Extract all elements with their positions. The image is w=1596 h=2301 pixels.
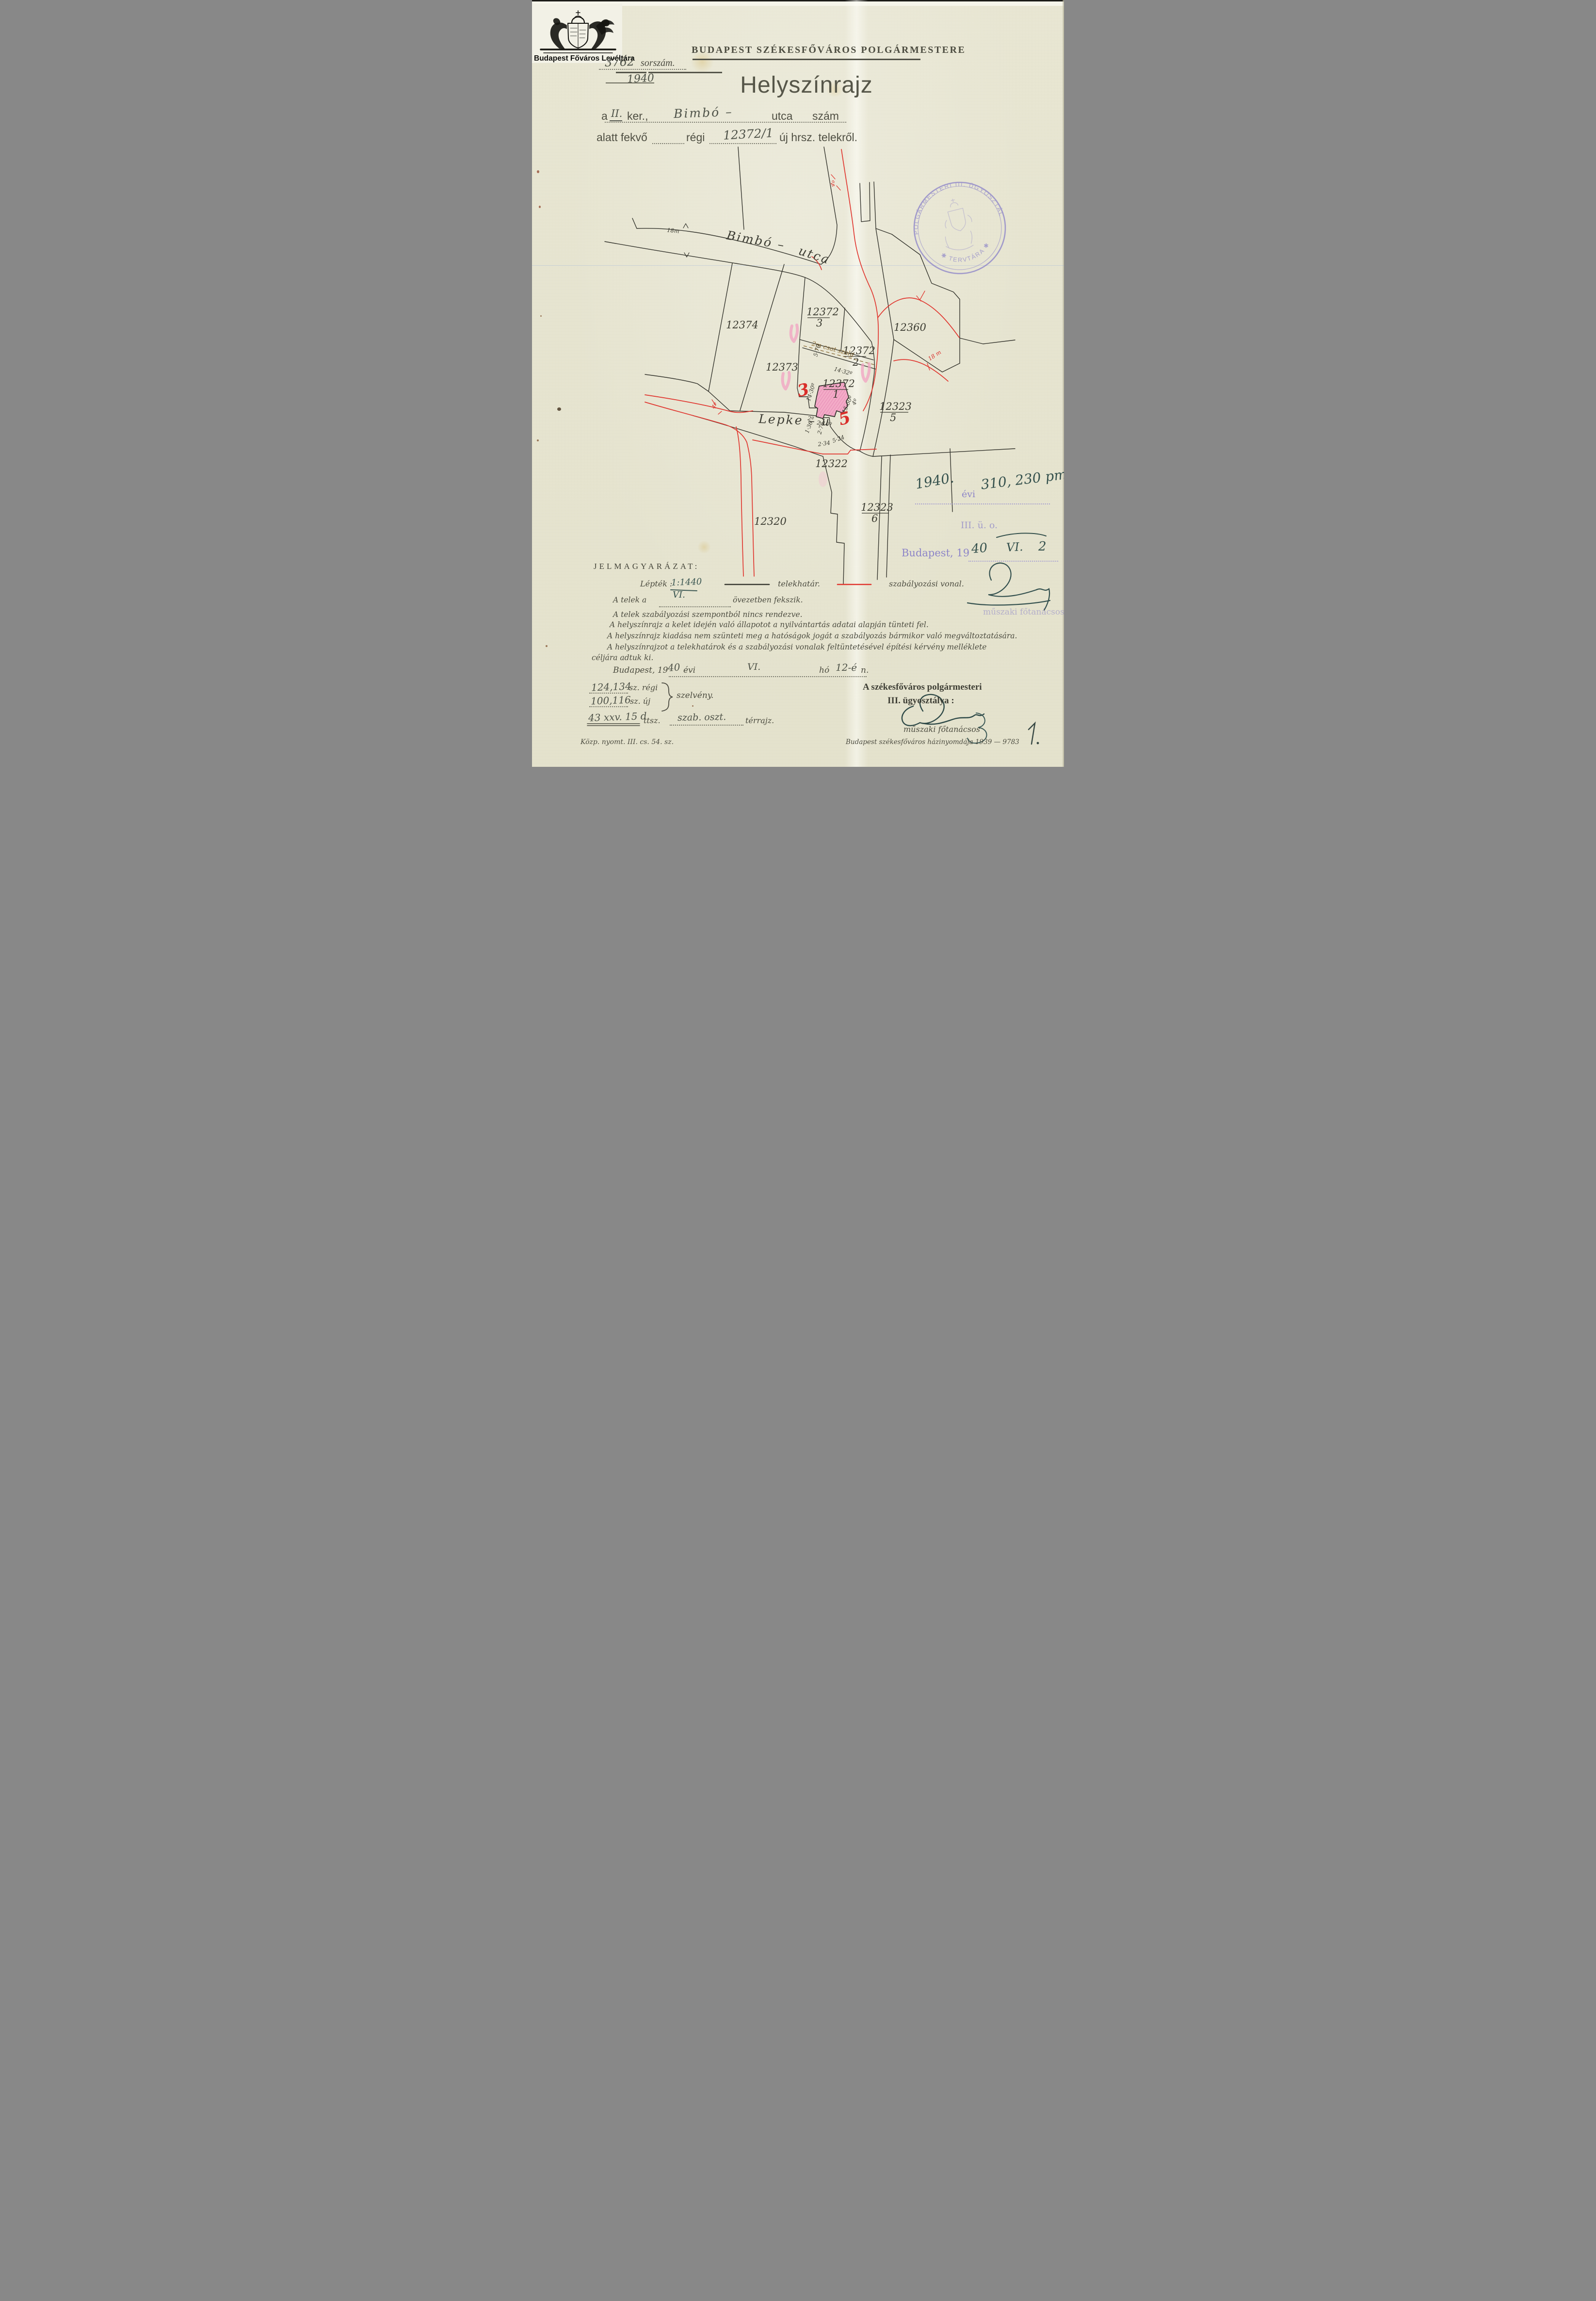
form-l2-regi: régi [686,131,705,144]
purple-dotted-1 [915,503,1050,504]
footer-left: Közp. nyomt. III. cs. 54. sz. [580,738,674,746]
section-old-number: 124,134 [591,681,632,694]
section-new-dotted [589,706,628,707]
section-old-dotted [589,693,628,694]
parcel-12372-1-den: 1 [833,389,839,400]
signature-middle [967,563,1050,610]
signoff-title: műszaki főtanácsos [903,725,980,734]
purple-dotted-2 [968,561,1058,562]
legend-heading: JELMAGYARÁZAT: [594,562,699,571]
signoff-line2: III. ügyosztálya : [887,696,954,706]
statement-4a: A helyszínrajzot a telekhatárok és a sza… [607,643,986,651]
footer-right: Budapest székesfőváros házinyomdája 1939… [846,738,1019,746]
parcel-12372-3-num: 12372 [806,306,839,318]
red-width-18m: 18 m [927,349,942,362]
dateline-year: 40 [667,661,680,674]
section-new-label: sz. új [630,697,650,706]
form-l1-ker: ker., [627,110,648,123]
form-l2-dotted-a [652,143,684,144]
zone-value: VI. [673,590,685,600]
statement-4b: céljára adtuk ki. [592,653,653,662]
legend-black-label: telekhatár. [778,579,820,588]
zone-post: övezetben fekszik. [733,596,803,604]
page-title: Helyszínrajz [728,72,885,98]
ttsz-number: 43 xxv. 15 d [588,710,647,724]
red-measure-4-left: 4º [709,401,719,411]
map-parcel-lines [605,147,1015,584]
parcel-12360: 12360 [894,322,926,333]
parcel-12320: 12320 [754,516,787,527]
form-hrsz-value: 12372/1 [723,126,774,142]
parcel-12373: 12373 [766,361,798,373]
dateline-dotted [669,676,867,677]
map-labels: 18m Bimbó – utca Lepke – u 12374 12373 1… [667,179,943,527]
note-title-faint: műszaki főtanácsos [983,607,1064,617]
red-measure-4-top: 4º [829,179,838,188]
header-rule [693,59,920,60]
note-date-vi: VI. [1006,540,1023,554]
dateline-pre: Budapest, 19 [613,665,668,675]
dateline-day: 12-é [836,662,857,673]
parcel-12372-1-num: 12372 [822,378,855,389]
parcel-12323-5-num: 12323 [879,401,912,412]
stamp-emblem [935,195,978,253]
section-szelveny: szelvény. [677,691,714,700]
handwritten-page-number [1029,723,1039,744]
parcel-12323-6-num: 12323 [861,502,893,513]
map-regulation-lines [645,149,959,576]
statement-3: A helyszínrajz kiadása nem szünteti meg … [607,632,1017,640]
street-name-utca: utca [797,243,832,267]
ttsz-dotted [670,725,743,726]
terrajz-label: térrajz. [745,716,774,725]
form-l1-dotted [605,122,846,123]
zone-dotted [659,606,731,607]
form-district-value: II. [611,108,622,119]
dateline-month: VI. [747,662,760,672]
note-date-40: 40 [971,541,988,557]
ttsz-label: ttsz. [644,716,661,725]
signoff-line1: A székesfőváros polgármesteri [863,682,982,693]
dateline-ho: hó [819,665,829,675]
dateline-evi: évi [683,665,695,675]
szab-oszt: szab. oszt. [677,712,726,723]
zone-pre: A telek a [613,596,646,604]
document-page: 18m Bimbó – utca Lepke – u 12374 12373 1… [532,0,1064,767]
parcel-12323-6-den: 6 [871,513,878,524]
parcel-12322: 12322 [815,458,848,470]
red-number-3: 3 [796,380,811,401]
form-street-value: Bimbó – [674,105,734,121]
form-l2-dotted-b [709,143,776,144]
legend-scale-value: 1:1440 [671,577,702,588]
measure-1432: 14·32º [833,365,853,377]
office-header: BUDAPEST SZÉKESFŐVÁROS POLGÁRMESTERE [692,45,922,56]
stamp-dept: III. ü. o. [961,520,998,531]
dateline-suffix: n. [861,665,869,675]
measure-234: 2·34 [817,439,830,448]
brace-icon [662,683,673,711]
parcel-12372-2-den: 2 [852,356,859,368]
form-district-underline [610,120,622,121]
section-old-label: sz. régi [629,683,658,692]
parcel-12323-5-den: 5 [890,412,896,423]
legend-scale-label: Lépték : [640,579,672,588]
serial-number: 3762 [605,55,635,69]
statement-2: A helyszínrajz a kelet idején való állap… [610,620,929,629]
parcel-12374: 12374 [726,319,758,331]
form-l1-szam: szám [812,110,839,123]
serial-dotted-line [599,69,686,70]
stamp-budapest19: Budapest, 19 [902,547,969,559]
serial-rule-2 [648,72,722,73]
form-l2-prefix: alatt fekvő [596,131,647,144]
serial-label: sorszám. [641,58,675,69]
serial-year: 1940 [627,72,654,86]
form-l1-utca: utca [772,110,792,123]
stamp-evi: évi [962,489,975,500]
section-new-number: 100,116 [591,694,631,707]
street-width-label: 18m [667,227,680,235]
serial-year-rule [606,82,654,83]
statement-1: A telek szabályozási szempontból nincs r… [613,610,803,619]
street-name-bimbo: Bimbó – [725,228,787,252]
form-l1-a: a [601,110,608,123]
note-date-2: 2 [1038,539,1047,554]
measure-524: 5·24 [831,434,845,444]
red-number-5: 5 [837,408,853,430]
parcel-12372-3-den: 3 [816,317,822,329]
legend-red-label: szabályozási vonal. [889,579,964,588]
form-l2-suffix: új hrsz. telekről. [779,131,857,144]
